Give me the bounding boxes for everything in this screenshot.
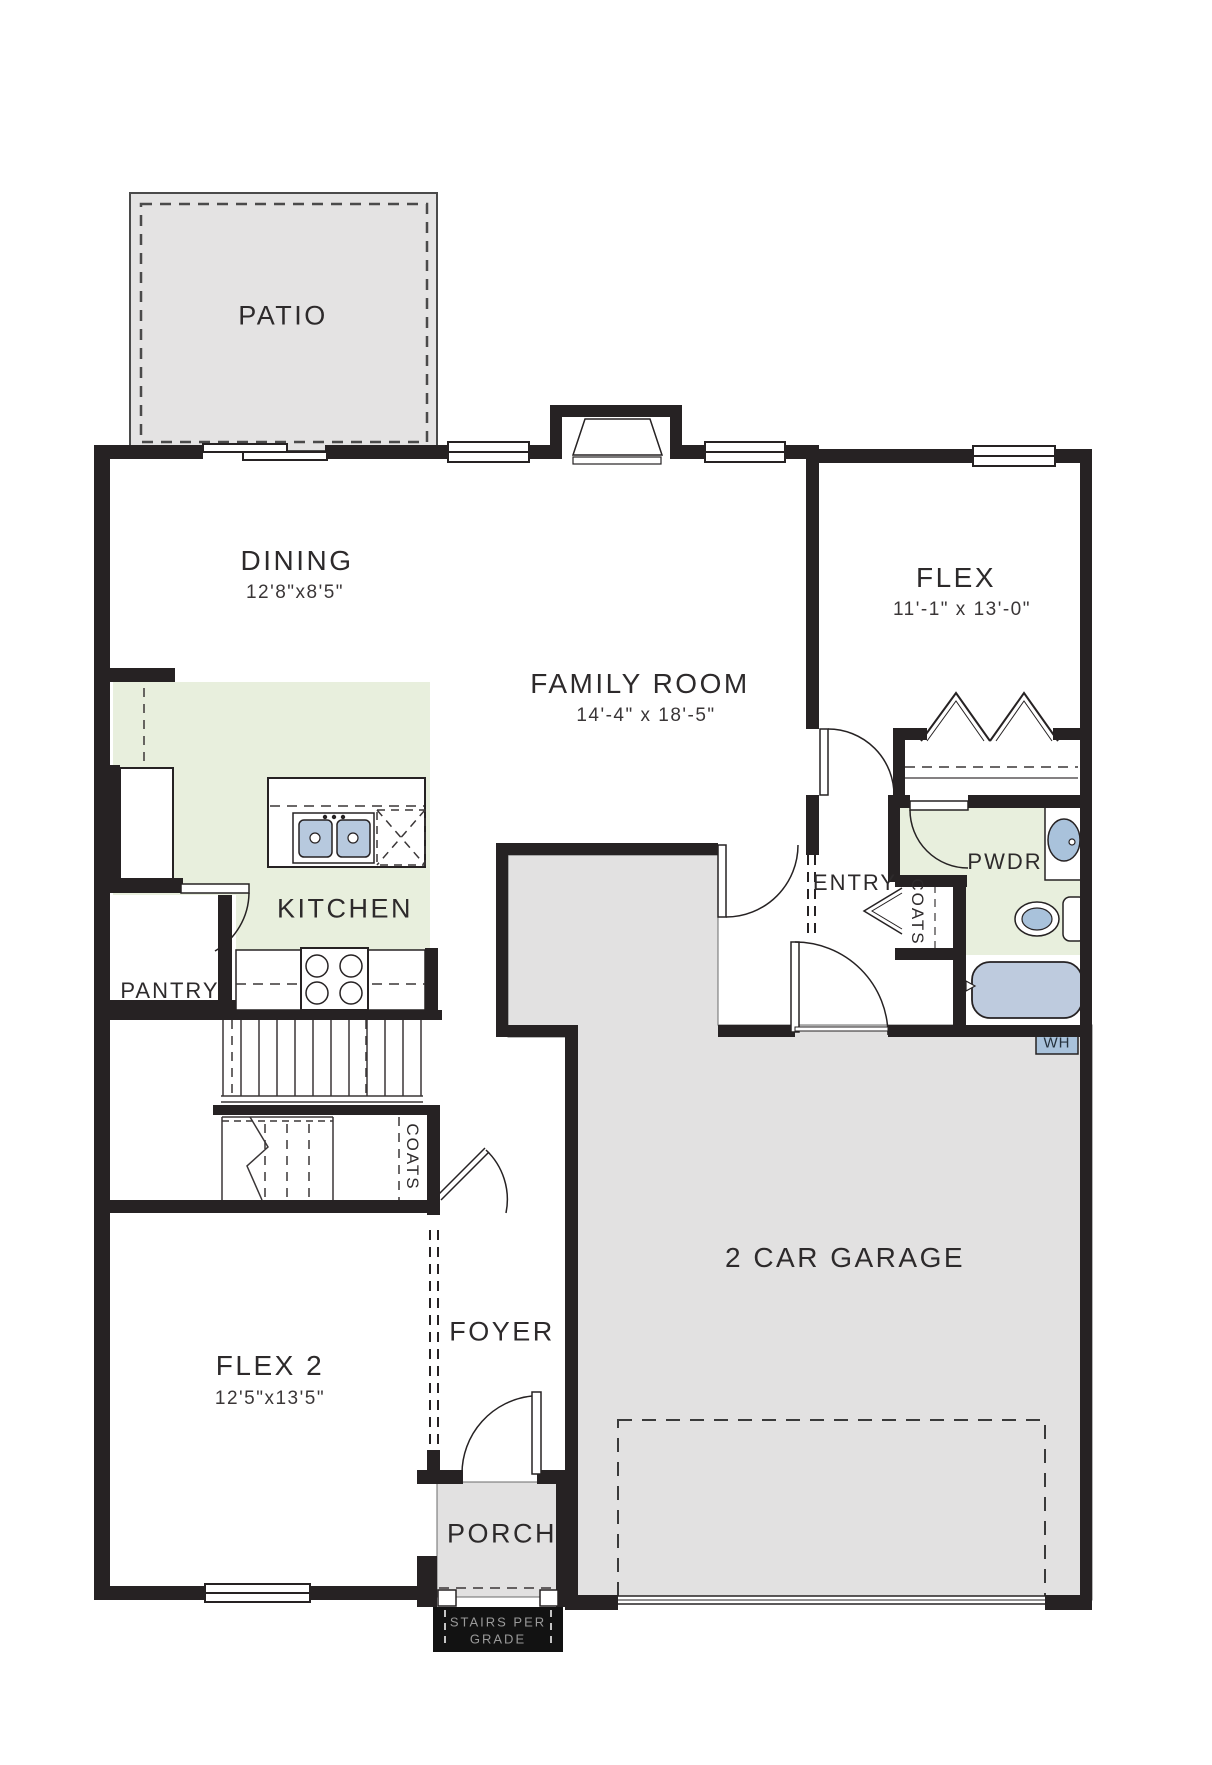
water-heater-label: WH xyxy=(1044,1035,1071,1052)
stairs-note-line2: GRADE xyxy=(470,1632,526,1647)
porch-label: PORCH xyxy=(447,1519,557,1550)
family-to-hall-door xyxy=(718,845,798,917)
range xyxy=(301,948,368,1010)
dining-label: DINING xyxy=(241,545,354,577)
double-sink xyxy=(293,813,374,863)
porch-column xyxy=(540,1590,558,1606)
fireplace xyxy=(550,405,682,464)
foyer-label: FOYER xyxy=(449,1317,555,1348)
entry-coats-label: COATS xyxy=(907,878,927,945)
flex-dims: 11'-1" x 13'-0" xyxy=(893,599,1031,621)
family-to-entry-door xyxy=(820,729,894,795)
entry-label: ENTRY xyxy=(813,870,897,896)
window xyxy=(448,442,529,462)
flex2-label: FLEX 2 xyxy=(216,1350,324,1382)
stairs-coats-label: COATS xyxy=(402,1123,422,1190)
window xyxy=(705,442,785,462)
refrigerator xyxy=(120,768,173,882)
front-door xyxy=(462,1392,541,1474)
flex-closet-bifold-doors xyxy=(921,693,1058,741)
family-room-label: FAMILY ROOM xyxy=(530,668,749,700)
stairs-note-line1: STAIRS PER xyxy=(450,1615,546,1630)
floor-plan: PATIO DINING 12'8"x8'5" FAMILY ROOM 14'-… xyxy=(0,0,1212,1765)
window xyxy=(205,1584,310,1602)
bathtub xyxy=(972,962,1082,1018)
dining-dims: 12'8"x8'5" xyxy=(246,582,344,604)
family-room-dims: 14'-4" x 18'-5" xyxy=(576,705,715,727)
sink xyxy=(1048,819,1080,861)
pwdr-label: PWDR xyxy=(967,849,1042,875)
entry-to-garage-door xyxy=(791,942,888,1035)
floor-plan-drawing xyxy=(0,0,1212,1765)
flex-label: FLEX xyxy=(916,562,996,594)
kitchen-label: KITCHEN xyxy=(277,894,413,925)
window xyxy=(973,446,1055,466)
patio-label: PATIO xyxy=(238,301,328,332)
garage-label: 2 CAR GARAGE xyxy=(725,1242,965,1274)
porch-column xyxy=(438,1590,456,1606)
flex2-dims: 12'5"x13'5" xyxy=(215,1388,325,1410)
stairs-coats-door xyxy=(437,1148,507,1213)
pantry-label: PANTRY xyxy=(120,978,219,1004)
